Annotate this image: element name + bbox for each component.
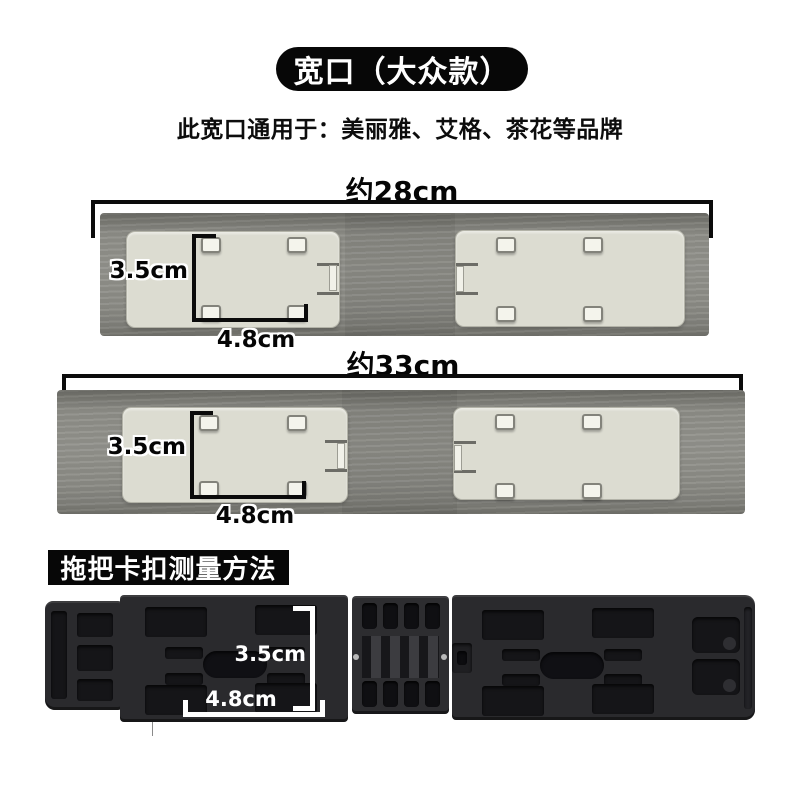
compatibility-note: 此宽口通用于：美丽雅、艾格、茶花等品牌 <box>0 110 800 144</box>
molded-recess <box>604 649 642 661</box>
hinge-pin <box>353 654 359 660</box>
hinge-pin <box>441 654 447 660</box>
end-cap-circle <box>723 637 736 650</box>
molded-recess <box>482 686 544 716</box>
hinge-hole <box>404 681 419 707</box>
clip-square <box>582 483 602 499</box>
bar28-right-clip-panel <box>455 230 685 327</box>
hinge-hole <box>425 603 440 629</box>
bar28-middle-seam <box>345 213 455 336</box>
molded-recess <box>744 607 752 709</box>
molded-recess <box>592 684 654 714</box>
header-pill: 宽口（大众款） <box>276 47 528 91</box>
clip-square <box>583 237 603 253</box>
clip-square <box>582 414 602 430</box>
panel-notch-tab <box>456 266 464 292</box>
clip-square <box>287 415 307 431</box>
molded-recess <box>482 610 544 640</box>
bar28-width-bracket <box>192 304 308 322</box>
clip-square <box>287 237 307 253</box>
bar33-width-label: 4.8cm <box>203 503 307 529</box>
hinge-hole <box>383 681 398 707</box>
end-cap-circle <box>723 679 736 692</box>
hinge-hole <box>362 603 377 629</box>
panel-notch <box>454 441 476 444</box>
stray-thread-mark <box>152 722 153 736</box>
hinge-hole <box>404 603 419 629</box>
molded-recess <box>502 649 540 661</box>
molded-recess <box>145 607 207 637</box>
buckle-left-end-cap <box>45 601 122 710</box>
panel-notch-tab <box>454 445 462 471</box>
buckle-width-label: 4.8cm <box>189 687 293 711</box>
method-title-bar: 拖把卡扣测量方法 <box>48 550 289 585</box>
bar33-width-bracket <box>190 481 306 499</box>
molded-recess <box>165 673 203 685</box>
panel-notch <box>317 292 339 295</box>
panel-notch-tab <box>329 265 337 291</box>
molded-recess <box>165 647 203 659</box>
bar28-height-label: 3.5cm <box>104 258 188 284</box>
molded-recess <box>51 611 67 699</box>
clip-square <box>495 483 515 499</box>
buckle-right-body <box>452 595 755 720</box>
buckle-photo: 3.5cm 4.8cm <box>43 593 757 725</box>
buckle-height-label: 3.5cm <box>226 642 306 666</box>
header-title: 宽口（大众款） <box>294 47 511 91</box>
molded-recess <box>77 645 113 671</box>
hinge-hole <box>383 603 398 629</box>
bar33-height-label: 3.5cm <box>102 434 186 460</box>
bar33-middle-seam <box>342 390 457 514</box>
clip-square <box>495 414 515 430</box>
hinge-hole <box>362 681 377 707</box>
buckle-hinge <box>352 596 449 714</box>
connector-tab-hole <box>457 651 467 665</box>
panel-notch-tab <box>337 443 345 469</box>
molded-recess <box>77 613 113 637</box>
method-title: 拖把卡扣测量方法 <box>60 549 276 586</box>
hinge-ribs <box>362 636 439 678</box>
bar33-right-clip-panel <box>453 407 680 500</box>
clip-square <box>496 306 516 322</box>
molded-recess <box>77 679 113 701</box>
center-oval-slot <box>540 652 604 679</box>
product-measurement-figure: 宽口（大众款） 此宽口通用于：美丽雅、艾格、茶花等品牌 约28cm 3.5cm … <box>0 0 800 800</box>
clip-square <box>583 306 603 322</box>
panel-notch <box>325 469 347 472</box>
panel-notch <box>456 292 478 295</box>
molded-recess <box>502 674 540 686</box>
hinge-hole <box>425 681 440 707</box>
molded-recess <box>592 608 654 638</box>
clip-square <box>496 237 516 253</box>
